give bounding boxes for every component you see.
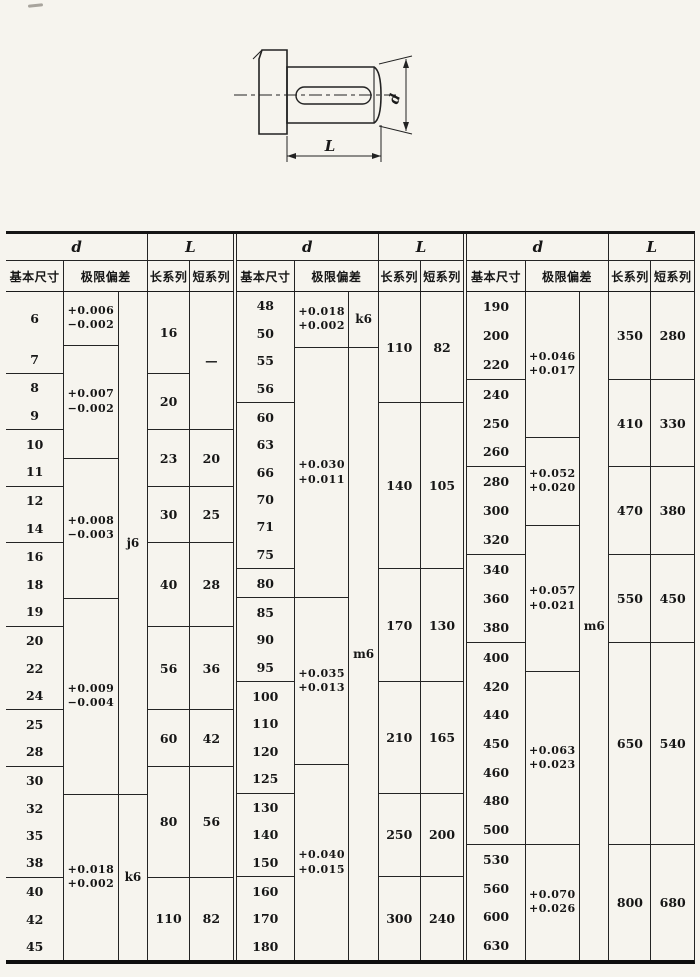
basic-size-cell: 18 [6,571,64,598]
dimension-table-block-2: dL基本尺寸极限偏差长系列短系列48+0.018+0.002k611082505… [237,234,464,960]
basic-size-cell: 90 [237,626,295,653]
basic-size-cell: 70 [237,486,295,513]
technical-drawing: d L [222,34,427,174]
deviation-upper: +0.018 [295,305,348,319]
deviation-lower: −0.003 [64,528,117,542]
header-short-series: 短系列 [190,261,233,292]
basic-size-cell: 32 [6,794,64,821]
short-series-cell: 200 [420,793,463,877]
short-series-cell: 130 [420,569,463,682]
deviation-cell: +0.008−0.003 [64,458,118,598]
long-series-cell: 800 [609,844,651,960]
basic-size-cell: 85 [237,598,295,626]
deviation-lower: +0.026 [526,902,579,916]
long-series-cell: 110 [378,292,420,403]
basic-size-cell: 600 [467,903,525,932]
long-series-cell: 56 [148,626,190,710]
short-series-cell: 380 [651,467,694,555]
basic-size-cell: 55 [237,347,295,374]
header-basic-size: 基本尺寸 [6,261,64,292]
deviation-lower: +0.002 [295,319,348,333]
short-series-cell: 25 [190,486,233,542]
deviation-upper: +0.057 [526,584,579,598]
tolerance-zone-cell: m6 [580,292,609,961]
deviation-upper: +0.046 [526,350,579,364]
table-block-1: dL基本尺寸极限偏差长系列短系列6+0.006−0.002j616—7+0.00… [6,234,233,960]
deviation-lower: +0.020 [526,481,579,495]
basic-size-cell: 8 [6,374,64,402]
basic-size-cell: 360 [467,584,525,613]
header-limit-deviation: 极限偏差 [64,261,148,292]
short-series-cell: 28 [190,543,233,627]
header-limit-deviation: 极限偏差 [294,261,378,292]
basic-size-cell: 440 [467,701,525,730]
header-short-series: 短系列 [420,261,463,292]
basic-size-cell: 7 [6,345,64,373]
dimension-L: L [287,125,381,162]
deviation-lower: −0.002 [64,318,117,332]
short-series-cell: 82 [190,877,233,960]
deviation-cell: +0.009−0.004 [64,598,118,794]
basic-size-cell: 130 [237,793,295,821]
dimension-table-block-1: dL基本尺寸极限偏差长系列短系列6+0.006−0.002j616—7+0.00… [6,234,233,960]
basic-size-cell: 100 [237,682,295,710]
long-series-cell: 140 [378,403,420,569]
deviation-lower: +0.002 [64,877,117,891]
deviation-upper: +0.018 [64,863,117,877]
basic-size-cell: 220 [467,350,525,380]
short-series-cell: 82 [420,292,463,403]
basic-size-cell: 60 [237,403,295,431]
long-series-cell: 350 [609,292,651,380]
header-long-series: 长系列 [609,261,651,292]
basic-size-cell: 380 [467,613,525,643]
scan-artifact [28,3,43,8]
table-block-3: dL基本尺寸极限偏差长系列短系列190+0.046+0.017m63502802… [467,234,694,960]
basic-size-cell: 14 [6,514,64,542]
short-series-cell: 280 [651,292,694,380]
deviation-upper: +0.035 [295,667,348,681]
basic-size-cell: 40 [6,877,64,905]
short-series-cell: 165 [420,682,463,793]
basic-size-cell: 12 [6,486,64,514]
dim-label-d: d [386,92,404,106]
basic-size-cell: 24 [6,682,64,710]
long-series-cell: 410 [609,379,651,467]
basic-size-cell: 22 [6,654,64,681]
long-series-cell: 16 [148,292,190,374]
basic-size-cell: 11 [6,458,64,486]
dimension-table-block-3: dL基本尺寸极限偏差长系列短系列190+0.046+0.017m63502802… [467,234,694,960]
basic-size-cell: 320 [467,525,525,555]
basic-size-cell: 480 [467,786,525,815]
long-series-cell: 650 [609,642,651,844]
basic-size-cell: 28 [6,738,64,766]
deviation-cell: +0.035+0.013 [294,598,348,765]
basic-size-cell: 560 [467,874,525,903]
column-group-L: L [148,234,233,261]
tolerance-zone-cell: k6 [118,794,147,960]
basic-size-cell: 250 [467,409,525,438]
sleeve-outline [253,50,381,134]
basic-size-cell: 170 [237,905,295,932]
basic-size-cell: 190 [467,292,525,322]
deviation-upper: +0.052 [526,467,579,481]
basic-size-cell: 500 [467,815,525,845]
long-series-cell: 20 [148,374,190,430]
tolerance-zone-cell: j6 [118,292,147,795]
basic-size-cell: 66 [237,458,295,485]
scanned-page: d L dL基本尺寸极限偏差长系列短系列6+0.006−0.002j616—7+… [0,0,700,977]
table-block-2: dL基本尺寸极限偏差长系列短系列48+0.018+0.002k611082505… [237,234,464,960]
deviation-upper: +0.070 [526,888,579,902]
tolerance-zone-cell: m6 [349,347,378,960]
basic-size-cell: 240 [467,379,525,409]
deviation-upper: +0.007 [64,387,117,401]
header-long-series: 长系列 [378,261,420,292]
deviation-upper: +0.063 [526,744,579,758]
long-series-cell: 23 [148,430,190,486]
deviation-lower: +0.023 [526,758,579,772]
deviation-lower: +0.015 [295,863,348,877]
dimension-table: dL基本尺寸极限偏差长系列短系列6+0.006−0.002j616—7+0.00… [6,231,695,964]
short-series-cell: 540 [651,642,694,844]
deviation-lower: +0.017 [526,364,579,378]
deviation-upper: +0.006 [64,304,117,318]
deviation-upper: +0.030 [295,458,348,472]
deviation-cell: +0.030+0.011 [294,347,348,598]
column-group-d: d [237,234,379,261]
deviation-cell: +0.070+0.026 [525,844,579,960]
basic-size-cell: 63 [237,431,295,458]
deviation-lower: −0.004 [64,696,117,710]
basic-size-cell: 140 [237,821,295,848]
deviation-upper: +0.040 [295,848,348,862]
deviation-lower: +0.011 [295,473,348,487]
short-series-cell: 36 [190,626,233,710]
basic-size-cell: 38 [6,849,64,877]
deviation-lower: +0.021 [526,599,579,613]
short-series-cell: 20 [190,430,233,486]
short-series-cell: 105 [420,403,463,569]
column-group-L: L [609,234,694,261]
basic-size-cell: 42 [6,905,64,932]
basic-size-cell: 16 [6,543,64,571]
basic-size-cell: 125 [237,765,295,793]
long-series-cell: 170 [378,569,420,682]
long-series-cell: 470 [609,467,651,555]
deviation-cell: +0.006−0.002 [64,292,118,346]
long-series-cell: 110 [148,877,190,960]
basic-size-cell: 200 [467,321,525,350]
basic-size-cell: 25 [6,710,64,738]
basic-size-cell: 340 [467,555,525,585]
basic-size-cell: 260 [467,437,525,467]
basic-size-cell: 30 [6,766,64,794]
deviation-cell: +0.063+0.023 [525,672,579,845]
basic-size-cell: 280 [467,467,525,497]
basic-size-cell: 95 [237,654,295,682]
basic-size-cell: 48 [237,292,295,320]
basic-size-cell: 530 [467,844,525,874]
short-series-cell: 450 [651,555,694,643]
long-series-cell: 30 [148,486,190,542]
column-group-L: L [378,234,463,261]
tolerance-zone-cell: k6 [349,292,378,348]
basic-size-cell: 71 [237,513,295,540]
basic-size-cell: 19 [6,598,64,626]
basic-size-cell: 56 [237,374,295,402]
header-limit-deviation: 极限偏差 [525,261,609,292]
short-series-cell: — [190,292,233,430]
basic-size-cell: 35 [6,822,64,849]
basic-size-cell: 45 [6,933,64,960]
long-series-cell: 40 [148,543,190,627]
short-series-cell: 42 [190,710,233,766]
long-series-cell: 210 [378,682,420,793]
basic-size-cell: 75 [237,540,295,568]
basic-size-cell: 9 [6,402,64,430]
basic-size-cell: 10 [6,430,64,458]
basic-size-cell: 630 [467,931,525,960]
long-series-cell: 80 [148,766,190,877]
basic-size-cell: 150 [237,849,295,877]
long-series-cell: 300 [378,877,420,960]
short-series-cell: 330 [651,379,694,467]
short-series-cell: 56 [190,766,233,877]
deviation-upper: +0.009 [64,682,117,696]
basic-size-cell: 120 [237,737,295,764]
deviation-cell: +0.040+0.015 [294,765,348,960]
dim-label-L: L [324,137,336,155]
deviation-cell: +0.018+0.002 [64,794,118,960]
basic-size-cell: 420 [467,672,525,701]
dimension-d: d [379,56,412,134]
deviation-cell: +0.057+0.021 [525,525,579,672]
long-series-cell: 250 [378,793,420,877]
deviation-cell: +0.052+0.020 [525,437,579,525]
short-series-cell: 240 [420,877,463,960]
column-group-d: d [6,234,148,261]
long-series-cell: 60 [148,710,190,766]
deviation-cell: +0.007−0.002 [64,345,118,458]
basic-size-cell: 20 [6,626,64,654]
header-basic-size: 基本尺寸 [467,261,525,292]
basic-size-cell: 300 [467,497,525,526]
basic-size-cell: 80 [237,569,295,598]
header-long-series: 长系列 [148,261,190,292]
basic-size-cell: 180 [237,933,295,960]
basic-size-cell: 460 [467,758,525,787]
short-series-cell: 680 [651,844,694,960]
basic-size-cell: 400 [467,642,525,672]
basic-size-cell: 50 [237,320,295,347]
deviation-lower: −0.002 [64,402,117,416]
basic-size-cell: 6 [6,292,64,346]
deviation-cell: +0.046+0.017 [525,292,579,438]
basic-size-cell: 110 [237,710,295,737]
header-basic-size: 基本尺寸 [237,261,295,292]
long-series-cell: 550 [609,555,651,643]
deviation-cell: +0.018+0.002 [294,292,348,348]
deviation-lower: +0.013 [295,681,348,695]
column-group-d: d [467,234,609,261]
header-short-series: 短系列 [651,261,694,292]
deviation-upper: +0.008 [64,514,117,528]
basic-size-cell: 450 [467,729,525,758]
basic-size-cell: 160 [237,877,295,905]
